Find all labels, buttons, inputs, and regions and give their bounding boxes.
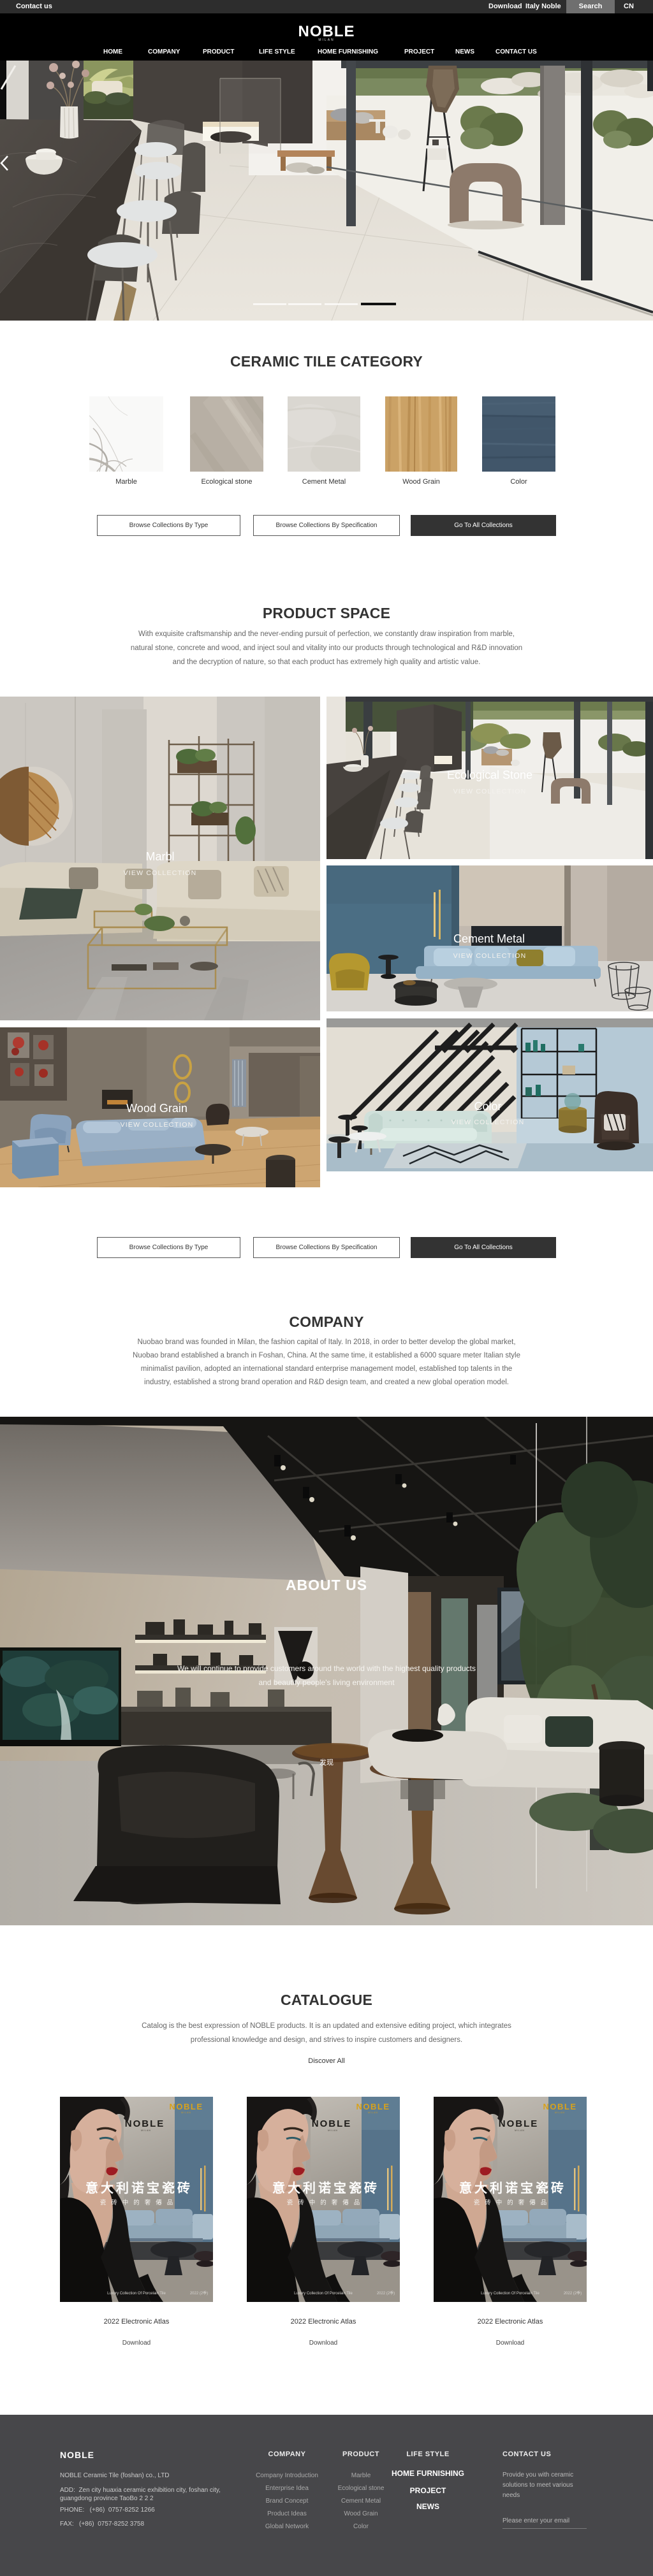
svg-text:and beautify people's living e: and beautify people's living environment (258, 1678, 395, 1687)
svg-text:Cement Metal: Cement Metal (453, 932, 525, 945)
svg-text:VIEW COLLECTION: VIEW COLLECTION (453, 952, 527, 960)
svg-text:Marbl: Marbl (145, 850, 174, 863)
svg-text:Ecological Stone: Ecological Stone (447, 769, 532, 781)
svg-text:Color: Color (474, 1100, 501, 1113)
svg-text:VIEW COLLECTION: VIEW COLLECTION (453, 788, 527, 795)
svg-text:VIEW COLLECTION: VIEW COLLECTION (124, 869, 197, 877)
svg-text:VIEW COLLECTION: VIEW COLLECTION (451, 1118, 525, 1126)
svg-text:发现: 发现 (319, 1758, 334, 1767)
svg-text:Wood Grain: Wood Grain (126, 1102, 187, 1115)
svg-text:VIEW COLLECTION: VIEW COLLECTION (121, 1121, 194, 1129)
svg-text:We will continue to provide cu: We will continue to provide customers ar… (177, 1664, 476, 1673)
svg-text:ABOUT US: ABOUT US (286, 1577, 367, 1593)
